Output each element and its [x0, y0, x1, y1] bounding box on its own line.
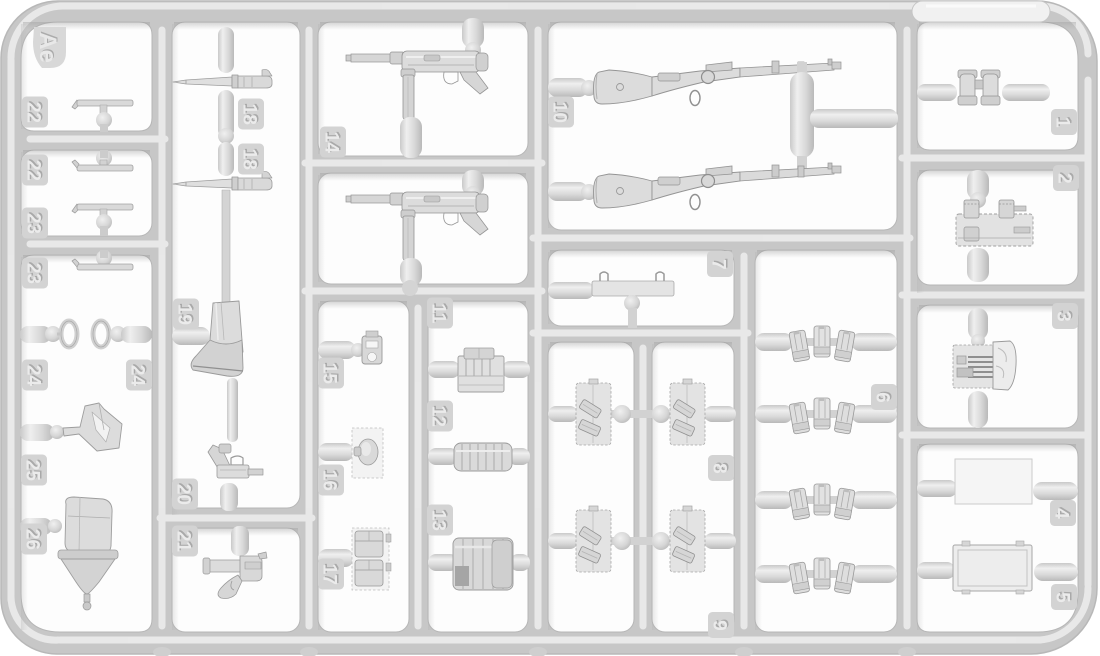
- svg-text:12: 12: [428, 406, 449, 427]
- svg-text:13: 13: [428, 510, 449, 531]
- svg-text:19: 19: [174, 304, 195, 325]
- svg-text:16: 16: [319, 470, 340, 491]
- svg-text:26: 26: [22, 529, 43, 550]
- svg-text:11: 11: [428, 303, 449, 324]
- svg-text:18: 18: [239, 149, 260, 170]
- svg-text:6: 6: [872, 392, 893, 403]
- svg-text:24: 24: [127, 365, 148, 387]
- svg-text:3: 3: [1053, 311, 1074, 322]
- svg-text:22: 22: [23, 160, 44, 181]
- svg-text:Ae: Ae: [34, 32, 61, 63]
- svg-text:17: 17: [319, 564, 340, 585]
- svg-text:1: 1: [1052, 117, 1073, 128]
- svg-text:21: 21: [173, 531, 194, 553]
- svg-text:20: 20: [173, 484, 194, 505]
- svg-text:9: 9: [709, 620, 730, 631]
- svg-text:8: 8: [709, 463, 730, 474]
- svg-text:25: 25: [22, 460, 43, 482]
- svg-text:24: 24: [23, 365, 44, 387]
- svg-text:14: 14: [321, 132, 342, 154]
- svg-text:2: 2: [1054, 173, 1075, 184]
- svg-text:23: 23: [23, 263, 44, 284]
- svg-text:22: 22: [23, 102, 44, 123]
- svg-text:7: 7: [708, 259, 729, 270]
- svg-text:5: 5: [1052, 592, 1073, 603]
- svg-text:15: 15: [319, 363, 340, 385]
- svg-text:23: 23: [23, 213, 44, 234]
- svg-text:10: 10: [549, 102, 570, 123]
- svg-text:4: 4: [1051, 508, 1072, 519]
- svg-text:18: 18: [239, 104, 260, 125]
